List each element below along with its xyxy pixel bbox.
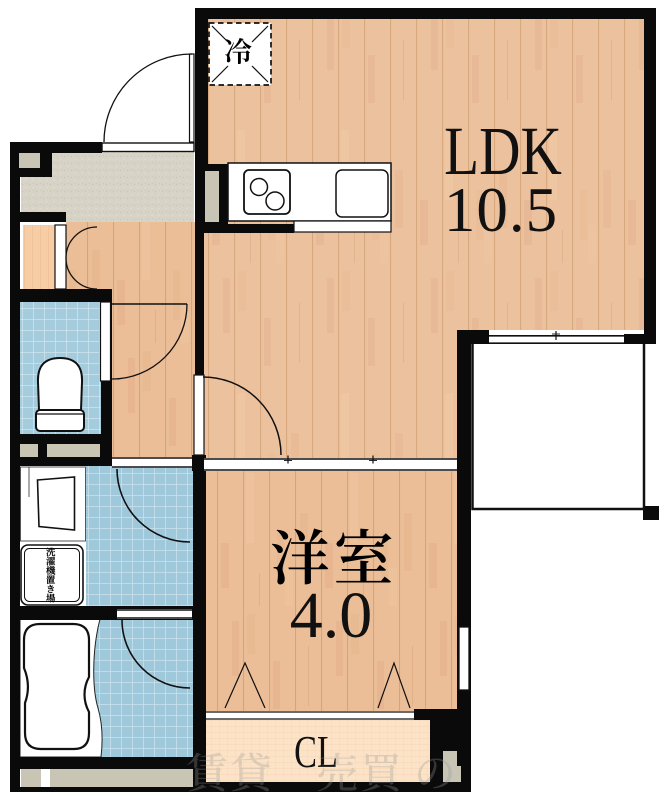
svg-text:10.5: 10.5 (444, 175, 558, 245)
svg-text:4.0: 4.0 (290, 579, 373, 652)
svg-text:CL: CL (294, 726, 338, 777)
